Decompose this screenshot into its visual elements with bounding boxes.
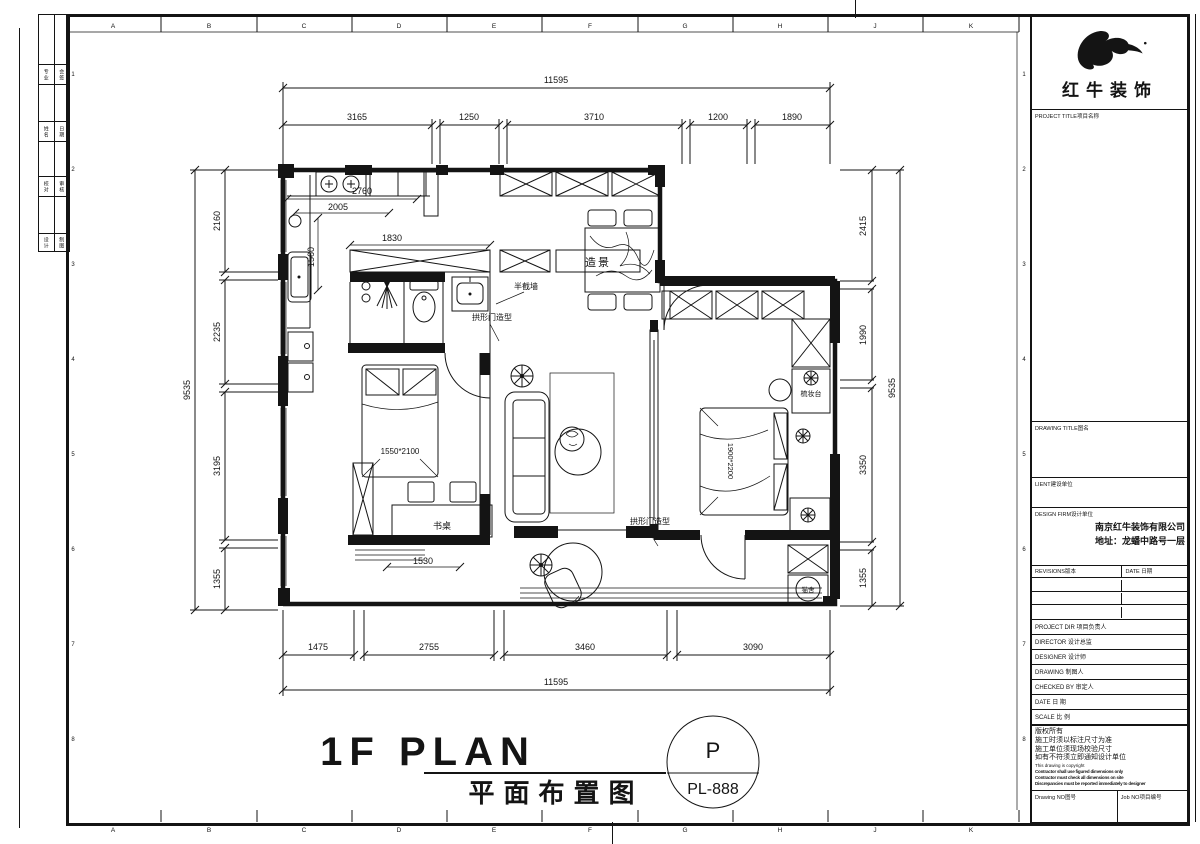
grid-letter: G [682, 827, 687, 834]
design-firm-header: DESIGN FIRM设计单位 [1035, 510, 1185, 518]
revisions-header: REVISIONS版本 [1032, 566, 1122, 578]
sheet-edge-right [1195, 14, 1196, 822]
plan-title-en: 1F PLAN [320, 730, 536, 774]
dim-text: 1990 [858, 325, 868, 345]
dining-chair [624, 210, 652, 226]
dim-text: 9535 [182, 380, 192, 400]
grid-letter: D [397, 827, 402, 834]
grid-letter: K [969, 827, 974, 834]
strip-cell: 设计 [39, 234, 55, 251]
grid-letter: C [302, 23, 307, 30]
dining-chair [588, 210, 616, 226]
grid-number: 2 [1022, 167, 1026, 173]
grid-number: 7 [1022, 642, 1026, 648]
title-block: 红牛装饰 PROJECT TITLE项目名称 DRAWING TITLE图名 L… [1030, 14, 1188, 824]
toilet-icon [410, 281, 438, 322]
dim-text: 1830 [382, 233, 402, 243]
sofa [505, 392, 549, 522]
grid-number: 1 [71, 72, 75, 78]
dim-text: 3165 [347, 112, 367, 122]
row-scale: SCALE 比 例 [1032, 710, 1188, 725]
dim-text: 2755 [419, 642, 439, 652]
dim-text: 2005 [328, 202, 348, 212]
grid-letter: K [969, 23, 974, 30]
brand-name: 红牛装饰 [1062, 76, 1158, 101]
grid-letter: B [207, 23, 211, 30]
copyright-line: 版权所有 [1035, 728, 1185, 737]
number-section: Drawing NO图号 Job NO项目编号 [1032, 791, 1188, 822]
dim-text: 3195 [212, 456, 222, 476]
grid-number: 6 [71, 547, 75, 553]
grid-letter: H [778, 23, 783, 30]
arch-door-label-1: 拱形门造型 [472, 312, 512, 322]
cat-house: 猫舍 [788, 575, 828, 603]
shower-head-icon [377, 280, 397, 309]
round-table [544, 543, 602, 601]
strip-cell: 姓名 [39, 122, 55, 141]
ceiling-lamp-icon [511, 365, 533, 387]
grid-letter: C [302, 827, 307, 834]
dim-bottom: 1475 2755 3460 3090 11595 [279, 642, 834, 694]
ceiling-spot-icon [796, 429, 810, 443]
dining-chair [588, 294, 616, 310]
dim-text: 11595 [544, 75, 568, 85]
dim-text: 1530 [413, 556, 433, 566]
half-wall-label: 半截墙 [514, 281, 538, 291]
dim-text: 2415 [858, 216, 868, 236]
dresser: 梳妆台 [769, 369, 830, 413]
dim-text: 3090 [743, 642, 763, 652]
bed-double: 1900*2200 [700, 408, 788, 515]
dresser-stool [769, 379, 791, 401]
drawing-sheet: 专业 会签 姓名 日期 校对 审核 设计 制图 [0, 0, 1200, 844]
grid-number: 8 [71, 737, 75, 743]
copyright-note: 版权所有 施工时须以标注尺寸为准 施工单位须现场校验尺寸 如有不符须立即通知设计… [1032, 725, 1188, 791]
dim-text: 1355 [212, 569, 222, 589]
copyright-line-en: Discrepancies must be reported immediate… [1035, 781, 1185, 787]
grid-letter: D [397, 23, 402, 30]
dim-text: 9535 [887, 378, 897, 398]
dim-text: 1250 [459, 112, 479, 122]
dim-text: 2235 [212, 322, 222, 342]
dim-text: 1355 [858, 568, 868, 588]
dresser-label: 梳妆台 [801, 389, 822, 398]
grid-ruler: A B C D E F G H J K A B C D E F G H J K [66, 16, 1026, 834]
grid-number: 2 [71, 167, 75, 173]
grid-letter: E [492, 827, 497, 834]
dim-text: 1890 [782, 112, 802, 122]
drawing-no-header: Drawing NO图号 [1032, 791, 1118, 822]
desk-label: 书桌 [433, 520, 451, 531]
firm-name: 南京红牛装饰有限公司 [1035, 521, 1185, 535]
grid-number: 6 [1022, 547, 1026, 553]
firm-address: 地址：龙蟠中路号一层 [1035, 535, 1185, 549]
ceiling-lamp-icon [530, 554, 552, 576]
grid-number: 7 [71, 642, 75, 648]
bed-size-label: 1900*2200 [726, 443, 735, 479]
dim-text: 3350 [858, 455, 868, 475]
logo-section: 红牛装饰 [1032, 16, 1188, 110]
row-date: DATE 日 期 [1032, 695, 1188, 710]
row-checked-by: CHECKED BY 审定人 [1032, 680, 1188, 695]
grid-letter: A [111, 23, 116, 30]
stamp-letter: P [706, 738, 721, 763]
floor-plan-drawing: A B C D E F G H J K A B C D E F G H J K [66, 14, 1030, 836]
revisions-table: REVISIONS版本 DATE 日期 [1032, 566, 1188, 620]
dim-text: 2160 [212, 211, 222, 231]
ceiling-spot-icon [801, 508, 815, 522]
dim-text: 2760 [352, 186, 372, 196]
grid-letter: A [111, 827, 116, 834]
grid-number: 8 [1022, 737, 1026, 743]
row-drawing: DRAWING 制图人 [1032, 665, 1188, 680]
cat-house-label: 猫舍 [802, 585, 816, 594]
grid-number: 4 [71, 357, 75, 363]
grid-letter: F [588, 23, 592, 30]
fold-mark-left [19, 28, 20, 828]
dim-text: 1475 [308, 642, 328, 652]
grid-letter: H [778, 827, 783, 834]
dining-chair [624, 294, 652, 310]
master-door2-arc [701, 535, 745, 579]
desk: 书桌 [392, 482, 492, 537]
grid-letter: B [207, 827, 211, 834]
row-designer: DESIGNER 设计师 [1032, 650, 1188, 665]
arch-door-label-2: 拱形门造型 [630, 516, 670, 526]
job-no-header: Job NO项目编号 [1118, 791, 1188, 822]
rug [550, 373, 614, 513]
grid-number: 5 [71, 452, 75, 458]
washbasin-icon [452, 277, 488, 311]
strip-cell: 校对 [39, 177, 55, 196]
dim-text: 3710 [584, 112, 604, 122]
grid-number: 3 [1022, 262, 1026, 268]
grid-letter: J [873, 827, 876, 834]
bed-size-label: 1550*2100 [381, 447, 420, 456]
project-title-header: PROJECT TITLE项目名称 [1035, 112, 1185, 120]
dim-text: 3460 [575, 642, 595, 652]
grid-number: 4 [1022, 357, 1026, 363]
bed-single: 1550*2100 [362, 365, 438, 477]
grid-letter: E [492, 23, 497, 30]
stamp-number: PL-888 [687, 781, 739, 798]
row-project-dir: PROJECT DIR 项目负责人 [1032, 620, 1188, 635]
bedroom-small: 1550*2100 书桌 1530 [348, 353, 492, 571]
grid-number: 1 [1022, 72, 1026, 78]
dim-top: 11595 3165 1250 3710 1200 1890 [279, 75, 834, 129]
scenery-cabinet: 1830 造景 [346, 233, 640, 282]
grid-letter: F [588, 827, 592, 834]
bathroom: 半截墙 拱形门造型 [348, 272, 538, 398]
copyright-line: 施工时须以标注尺寸为准 [1035, 737, 1185, 746]
client-header: LIENT建设单位 [1035, 480, 1185, 488]
strip-cell: 专业 [39, 65, 55, 84]
copyright-line: 施工单位须现场校验尺寸 [1035, 746, 1185, 755]
dim-text: 1200 [708, 112, 728, 122]
rednow-bull-logo-icon [1067, 24, 1153, 76]
grid-letter: J [873, 23, 876, 30]
plan-title-cn: 平面布置图 [468, 778, 643, 808]
drawing-title-header: DRAWING TITLE图名 [1035, 424, 1185, 432]
grid-number: 5 [1022, 452, 1026, 458]
dim-left: 9535 2160 2235 3195 1355 [182, 166, 229, 614]
copyright-line: 如有不符须立即通知设计单位 [1035, 754, 1185, 763]
living-room: 拱形门造型 [505, 320, 670, 546]
bedroom-master: 梳妆台 1900*2200 [654, 285, 835, 579]
date-header: DATE 日期 [1122, 566, 1188, 578]
shower-valve [362, 282, 370, 290]
dim-text: 1560 [306, 247, 316, 267]
scenery-label: 造景 [585, 255, 611, 269]
grid-number: 3 [71, 262, 75, 268]
row-director: DIRECTOR 设计总监 [1032, 635, 1188, 650]
side-table-plant [555, 427, 601, 475]
tv-wall [650, 320, 658, 532]
dim-text: 11595 [544, 677, 568, 687]
plan-title: 1F PLAN 平面布置图 P PL-888 [320, 716, 759, 808]
grid-letter: G [682, 23, 687, 30]
